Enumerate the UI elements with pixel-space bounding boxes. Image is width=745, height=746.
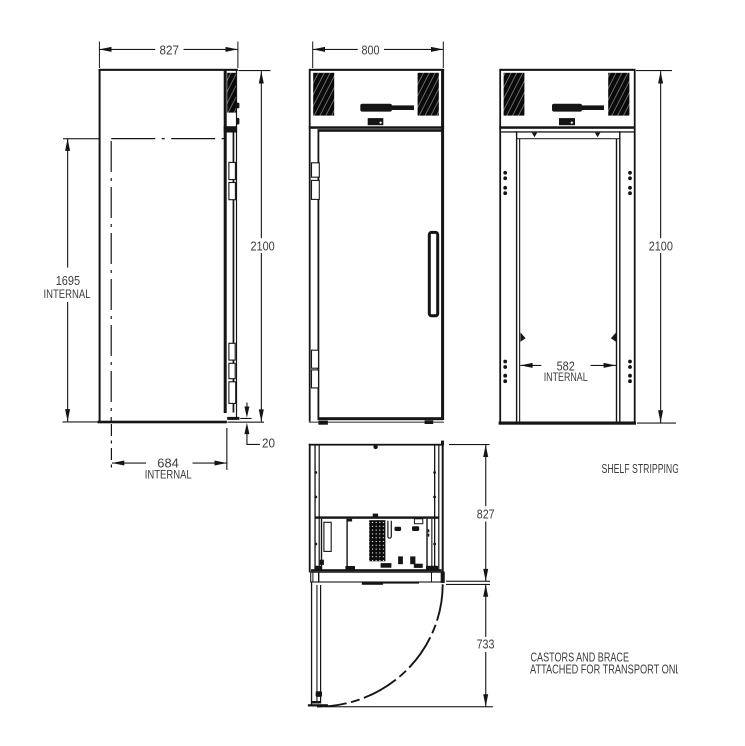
svg-text:800: 800 [362,42,380,57]
svg-text:INTERNAL: INTERNAL [44,289,91,301]
svg-text:2100: 2100 [649,239,673,254]
svg-text:INTERNAL: INTERNAL [544,372,588,384]
svg-text:1695: 1695 [56,273,80,288]
svg-text:ATTACHED FOR TRANSPORT ONLY: ATTACHED FOR TRANSPORT ONLY [530,661,686,676]
svg-text:827: 827 [477,506,495,521]
svg-text:SHELF STRIPPING: SHELF STRIPPING [602,461,680,476]
svg-text:733: 733 [477,637,495,652]
svg-text:582: 582 [557,358,575,373]
svg-text:20: 20 [262,436,275,451]
svg-text:INTERNAL: INTERNAL [145,469,192,481]
svg-text:827: 827 [160,42,180,57]
svg-text:2100: 2100 [251,239,275,254]
